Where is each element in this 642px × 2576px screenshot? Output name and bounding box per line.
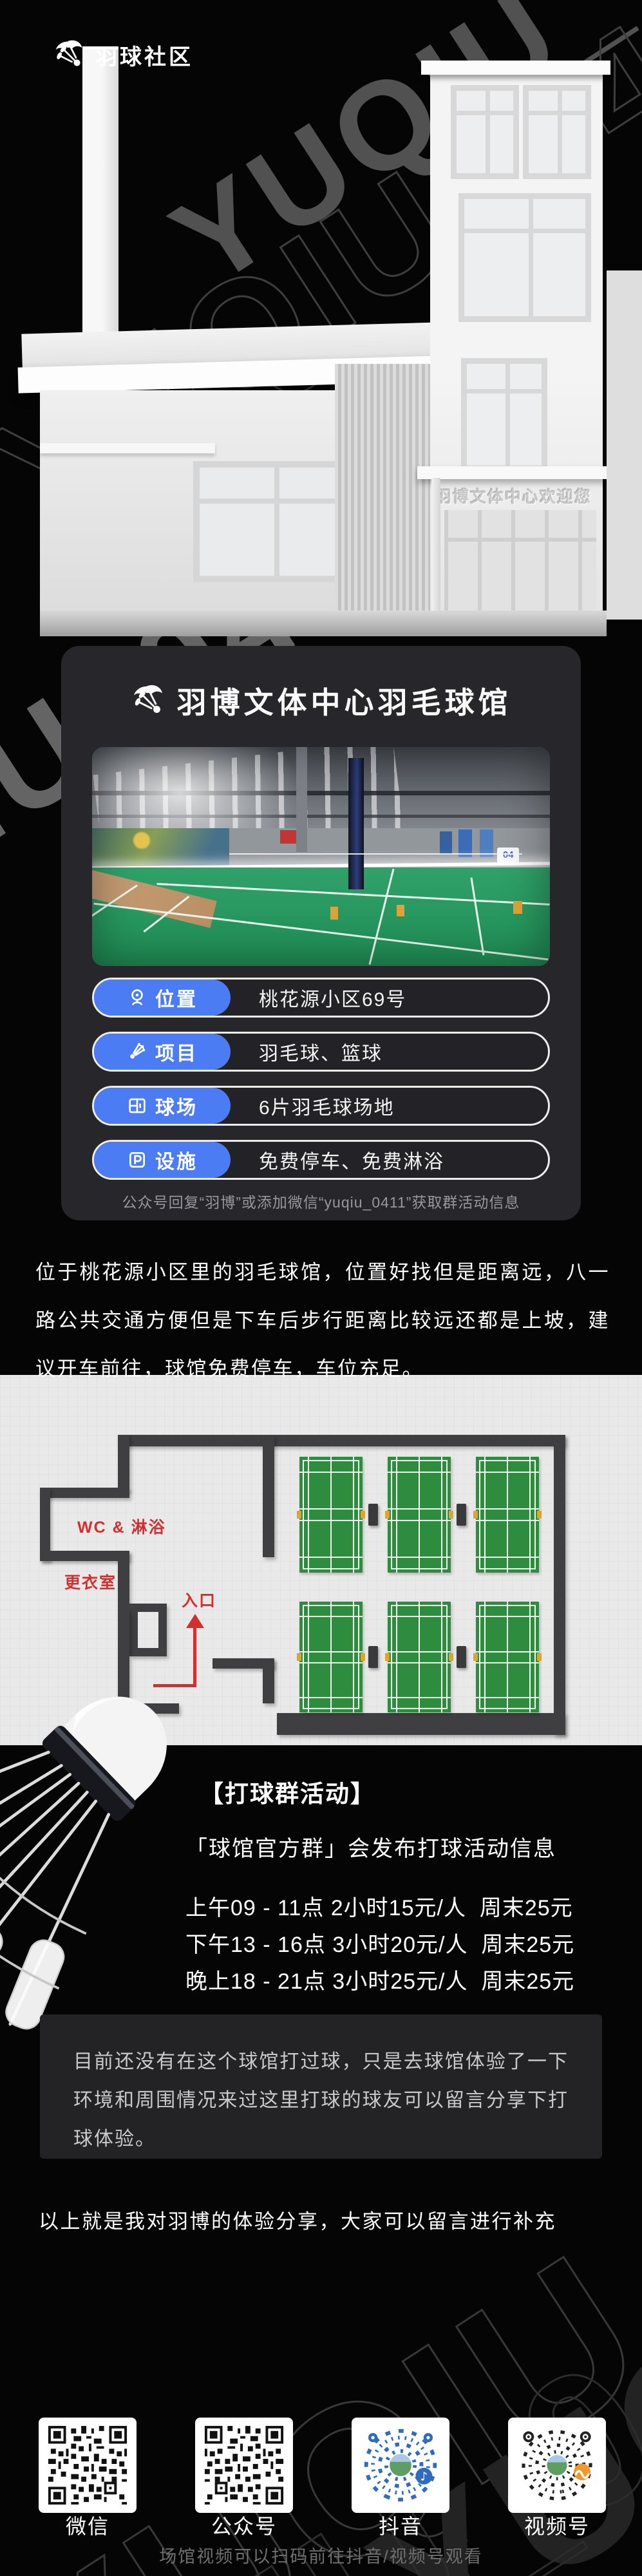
building-window xyxy=(193,461,355,582)
facilities-pill: 设施 xyxy=(94,1142,231,1178)
card-footnote: 公众号回复“羽博”或添加微信“yuqiu_0411”获取群活动信息 xyxy=(61,1190,581,1212)
shuttlecock-flame-icon xyxy=(53,39,85,71)
building-base xyxy=(40,611,607,636)
parking-icon xyxy=(127,1150,147,1170)
badminton-court xyxy=(299,1602,363,1712)
plan-net xyxy=(368,1504,378,1526)
plan-wall-wc-bottom xyxy=(40,1551,129,1561)
info-row-location: 位置 桃花源小区69号 xyxy=(92,978,550,1018)
plan-label-locker: 更衣室 xyxy=(64,1570,117,1593)
plan-net xyxy=(368,1646,378,1668)
plan-net xyxy=(457,1504,466,1526)
plan-wall-interior xyxy=(263,1435,274,1557)
venue-title: 羽博文体中心羽毛球馆 xyxy=(177,679,512,722)
plan-wall-left xyxy=(118,1435,129,1492)
row-label: 项目 xyxy=(155,1037,198,1066)
building-window xyxy=(458,193,591,322)
row-value: 桃花源小区69号 xyxy=(259,983,406,1012)
qr-label-wechat: 微信 xyxy=(39,2510,137,2540)
footer-note: 场馆视频可以扫码前往抖音/视频号观看 xyxy=(0,2543,642,2568)
channels-qr-pattern xyxy=(514,2423,600,2507)
qr-label-channels: 视频号 xyxy=(508,2510,606,2540)
plan-wall-entrance-post xyxy=(263,1658,274,1703)
badminton-court xyxy=(299,1457,363,1573)
plan-label-entrance: 入口 xyxy=(182,1588,216,1611)
plan-wall-bottom-band xyxy=(277,1713,565,1735)
svg-text:♪: ♪ xyxy=(420,2470,428,2483)
building-corrugated-wall xyxy=(335,364,433,621)
courts-pill: 球场 xyxy=(94,1088,231,1124)
building-sign-text: 羽博文体中心欢迎您 xyxy=(435,484,600,507)
venue-info-card: 羽博文体中心羽毛球馆 04 xyxy=(61,646,581,1220)
building-ledge xyxy=(40,443,215,453)
row-value: 6片羽毛球场地 xyxy=(259,1092,395,1120)
poster-page: YUQIU_0411 YUQIU_0411 YUQIU_0411 YUQIU_0… xyxy=(0,0,642,2576)
experience-note-box: 目前还没有在这个球馆打过球，只是去球馆体验了一下环境和周围情况来过这里打球的球友… xyxy=(40,2014,602,2159)
court-icon xyxy=(127,1095,147,1116)
qr-pattern xyxy=(44,2423,131,2507)
programs-pill: 项目 xyxy=(94,1034,231,1070)
intro-paragraph: 位于桃花源小区里的羽毛球馆，位置好找但是距离远，八一路公共交通方便但是下车后步行… xyxy=(35,1248,610,1393)
info-row-courts: 球场 6片羽毛球场地 xyxy=(92,1086,550,1126)
row-value: 免费停车、免费淋浴 xyxy=(259,1146,444,1174)
closing-line: 以上就是我对羽博的体验分享，大家可以留言进行补充 xyxy=(39,2205,618,2234)
building-canopy-post xyxy=(431,478,440,621)
channels-qr-code xyxy=(508,2418,606,2513)
building-side-block xyxy=(607,270,642,620)
building-entrance xyxy=(444,510,596,621)
row-label: 位置 xyxy=(155,983,198,1012)
badminton-court xyxy=(388,1602,451,1712)
official-account-qr-code xyxy=(195,2418,293,2513)
douyin-qr-code: ♪ xyxy=(352,2418,449,2513)
badminton-court xyxy=(476,1457,539,1573)
plan-wall-top xyxy=(118,1435,565,1446)
building-entrance-canopy xyxy=(417,466,610,479)
info-row-facilities: 设施 免费停车、免费淋浴 xyxy=(92,1140,550,1180)
badminton-court xyxy=(388,1457,451,1573)
row-value: 羽毛球、篮球 xyxy=(259,1037,382,1066)
wechat-qr-code xyxy=(39,2418,137,2513)
plan-net xyxy=(457,1646,466,1668)
experience-note-text: 目前还没有在这个球馆打过球，只是去球馆体验了一下环境和周围情况来过这里打球的球友… xyxy=(73,2043,569,2159)
plan-wall-left2 xyxy=(118,1551,129,1615)
photo-vignette xyxy=(92,747,550,966)
brand-logo: 羽球社区 xyxy=(53,39,193,71)
building-tower-roof xyxy=(421,61,610,75)
shuttlecock-flame-icon xyxy=(131,683,165,718)
plan-wall-right xyxy=(554,1435,565,1735)
douyin-qr-pattern: ♪ xyxy=(357,2423,444,2507)
plan-wall-wc-top xyxy=(40,1488,129,1498)
qr-pattern xyxy=(201,2423,287,2507)
row-label: 设施 xyxy=(155,1146,198,1174)
plan-wall-wc-left xyxy=(40,1488,50,1561)
row-label: 球场 xyxy=(155,1092,198,1120)
building-window xyxy=(523,85,591,179)
location-pill: 位置 xyxy=(94,980,231,1016)
building-window xyxy=(451,85,519,179)
qr-label-official-account: 公众号 xyxy=(195,2510,293,2540)
info-row-programs: 项目 羽毛球、篮球 xyxy=(92,1032,550,1072)
brand-name: 羽球社区 xyxy=(95,39,193,71)
gym-photo: 04 xyxy=(92,747,550,966)
badminton-court xyxy=(476,1602,539,1712)
building-window xyxy=(461,358,547,471)
location-icon xyxy=(127,987,147,1008)
venue-title-row: 羽博文体中心羽毛球馆 xyxy=(61,679,581,722)
shuttlecock-icon xyxy=(127,1041,147,1062)
qr-label-douyin: 抖音 xyxy=(352,2510,449,2540)
plan-label-wc: WC & 淋浴 xyxy=(77,1515,166,1538)
shuttlecock-render xyxy=(0,1645,248,2058)
